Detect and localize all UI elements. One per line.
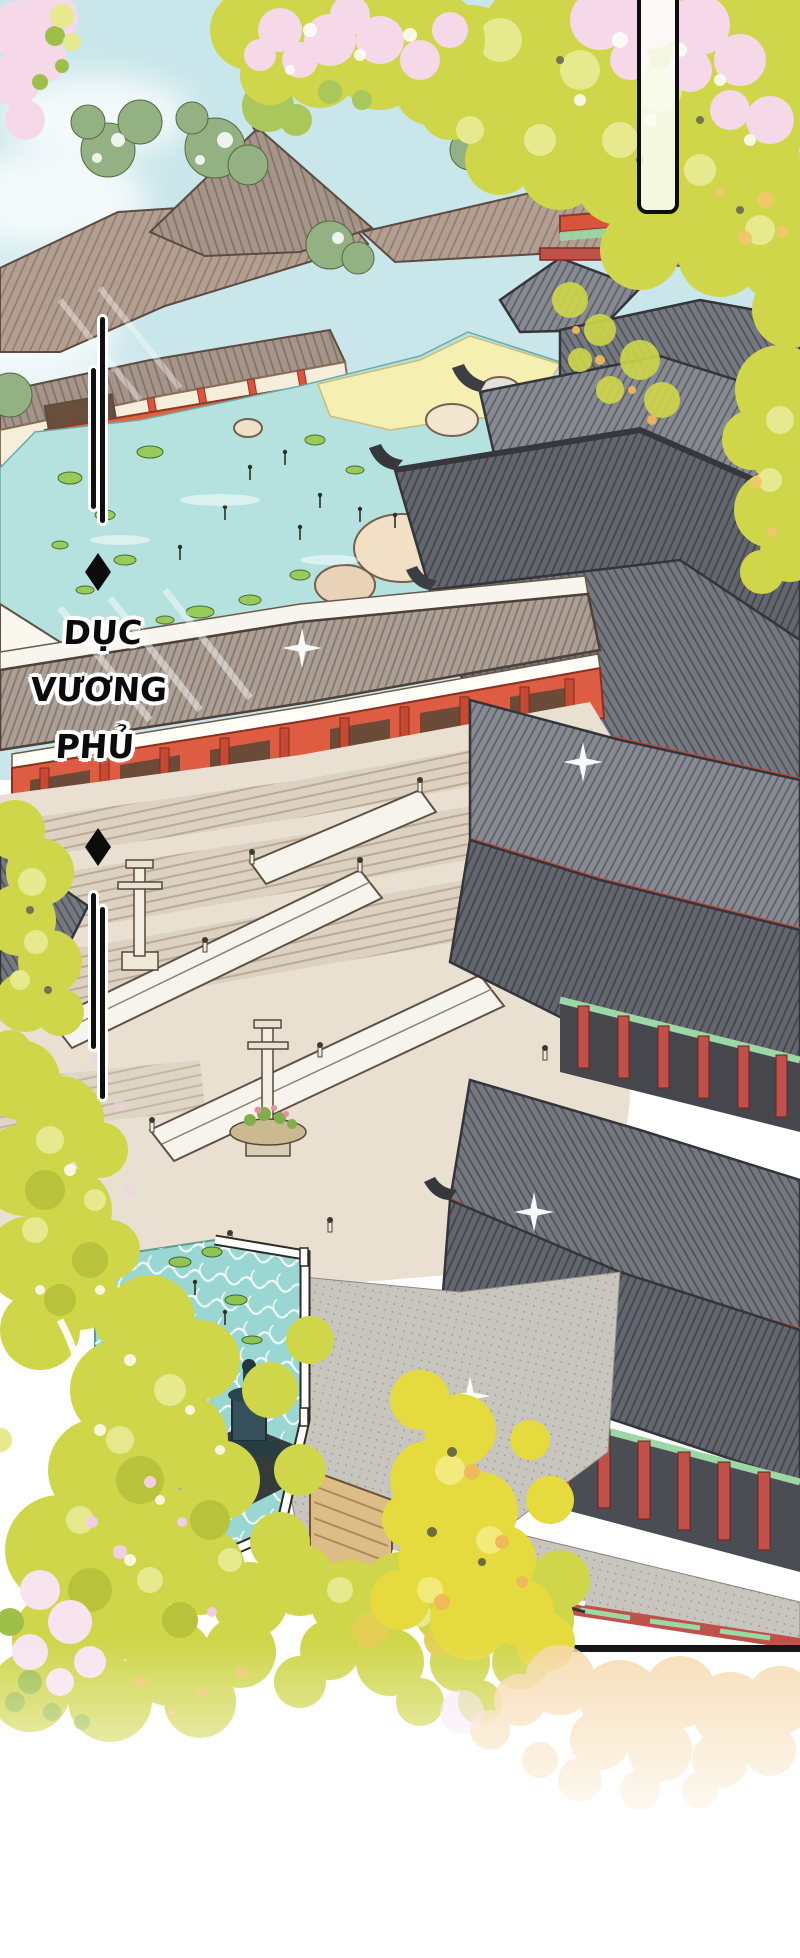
palace-illustration	[0, 0, 800, 1958]
caption-line-3: PHỦ	[4, 730, 186, 763]
location-caption: DỤC VƯƠNG PHỦ	[2, 616, 194, 787]
caption-connector-line-top-2	[91, 368, 96, 509]
caption-line-2: VƯƠNG	[8, 673, 190, 706]
caption-connector-line-top	[100, 317, 105, 523]
speech-bubble	[637, 0, 679, 214]
comic-panel: DỤC VƯƠNG PHỦ	[0, 0, 800, 1958]
caption-line-1: DỤC	[12, 616, 194, 649]
caption-connector-line-bottom-2	[100, 907, 105, 1099]
caption-connector-line-bottom	[91, 893, 96, 1049]
